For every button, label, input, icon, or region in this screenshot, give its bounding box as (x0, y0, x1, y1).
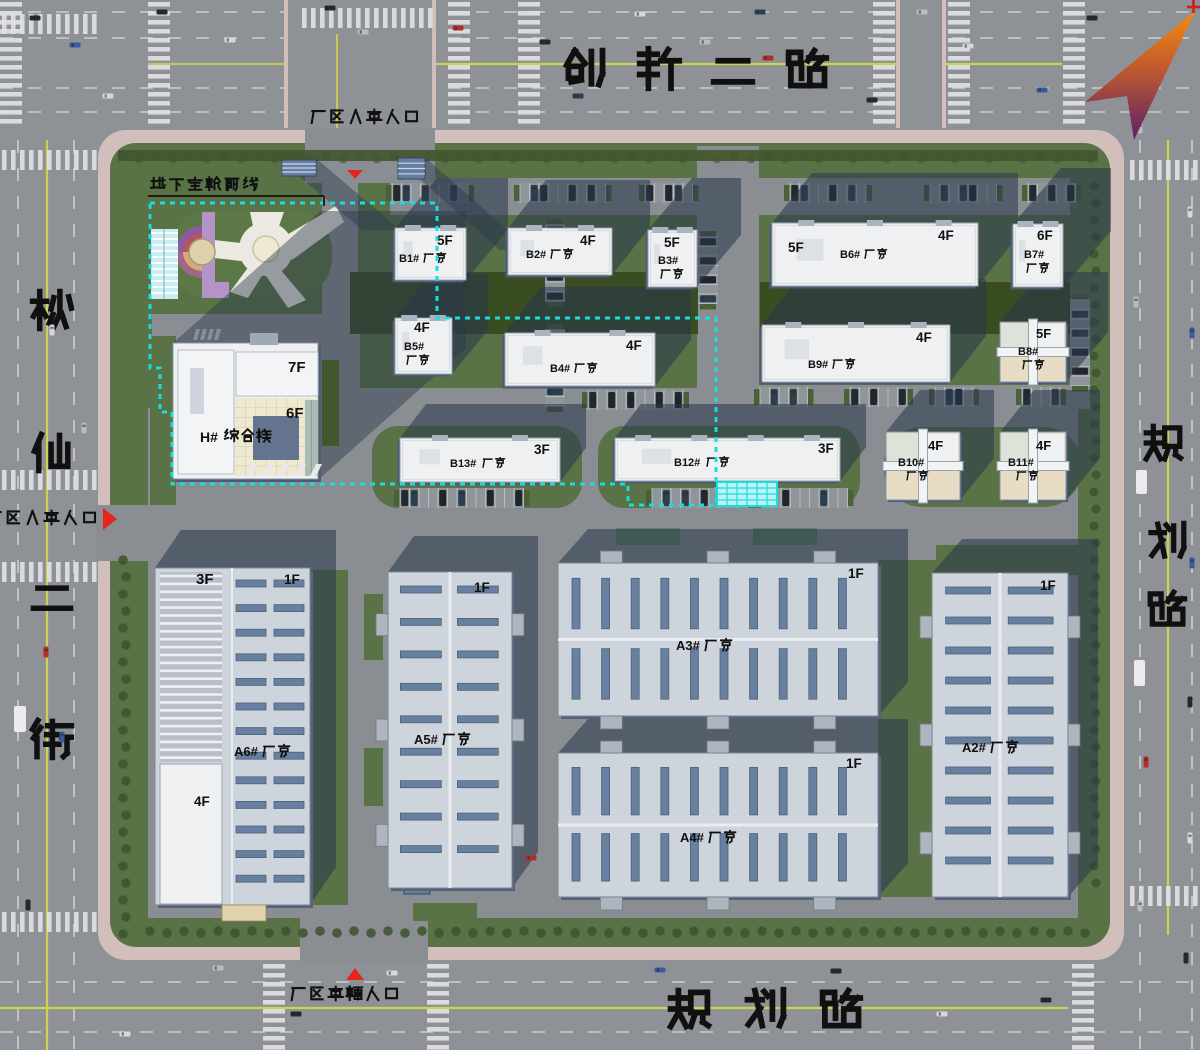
svg-text:3F: 3F (196, 571, 214, 588)
svg-text:B11#: B11# (1008, 457, 1034, 469)
svg-text:A5#: A5# (414, 732, 439, 747)
svg-text:B4#: B4# (550, 363, 570, 375)
svg-text:B8#: B8# (1018, 346, 1038, 358)
svg-text:B5#: B5# (404, 341, 424, 353)
svg-text:A2#: A2# (962, 740, 987, 755)
svg-text:1F: 1F (846, 756, 862, 771)
svg-text:4F: 4F (626, 338, 642, 353)
svg-text:B10#: B10# (898, 457, 924, 469)
svg-text:4F: 4F (916, 330, 932, 345)
svg-text:1F: 1F (848, 566, 864, 581)
svg-text:H#: H# (200, 429, 218, 445)
svg-text:6F: 6F (286, 405, 304, 422)
svg-text:B6#: B6# (840, 249, 860, 261)
svg-text:B1#: B1# (399, 253, 419, 265)
svg-text:4F: 4F (580, 233, 596, 248)
svg-text:B12#: B12# (674, 457, 700, 469)
svg-text:A6#: A6# (234, 744, 259, 759)
svg-text:B9#: B9# (808, 359, 828, 371)
svg-text:A3#: A3# (676, 638, 701, 653)
svg-text:1F: 1F (284, 572, 300, 587)
svg-text:4F: 4F (1036, 438, 1051, 453)
svg-text:7F: 7F (288, 359, 306, 376)
svg-text:B13#: B13# (450, 458, 476, 470)
svg-text:B2#: B2# (526, 249, 546, 261)
svg-text:4F: 4F (938, 228, 954, 243)
svg-text:1F: 1F (474, 580, 490, 595)
svg-text:B7#: B7# (1024, 249, 1044, 261)
svg-text:6F: 6F (1037, 228, 1053, 243)
svg-text:B3#: B3# (658, 255, 678, 267)
svg-text:5F: 5F (664, 235, 680, 250)
svg-text:A4#: A4# (680, 830, 705, 845)
svg-text:5F: 5F (437, 233, 453, 248)
svg-text:5F: 5F (788, 240, 804, 255)
svg-text:4F: 4F (928, 438, 943, 453)
svg-text:4F: 4F (414, 320, 430, 335)
svg-text:4F: 4F (194, 794, 210, 809)
svg-text:1F: 1F (1040, 578, 1056, 593)
svg-text:3F: 3F (818, 441, 834, 456)
svg-text:5F: 5F (1036, 326, 1051, 341)
svg-text:3F: 3F (534, 442, 550, 457)
